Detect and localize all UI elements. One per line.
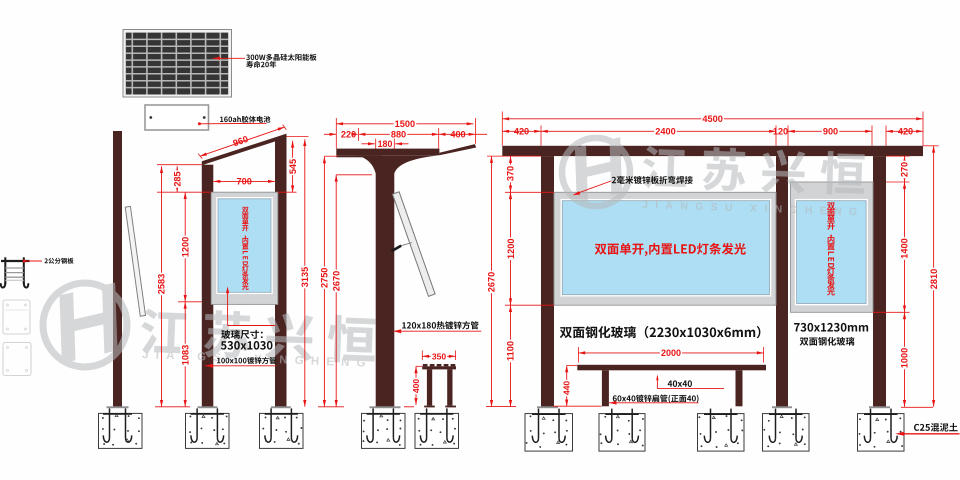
svg-text:2670: 2670: [331, 271, 341, 291]
svg-text:3135: 3135: [300, 267, 310, 287]
svg-text:1000: 1000: [900, 348, 910, 368]
svg-text:1100: 1100: [506, 341, 516, 361]
svg-text:180: 180: [378, 139, 393, 149]
svg-text:880: 880: [391, 130, 406, 140]
svg-text:420: 420: [514, 127, 529, 137]
svg-text:350: 350: [432, 351, 447, 361]
svg-text:700: 700: [237, 177, 252, 187]
svg-text:440: 440: [562, 381, 572, 396]
svg-text:2583: 2583: [157, 274, 167, 294]
svg-text:2750: 2750: [320, 268, 330, 288]
svg-text:370: 370: [506, 166, 516, 181]
svg-text:400: 400: [411, 379, 421, 394]
svg-text:120: 120: [773, 127, 788, 137]
svg-text:270: 270: [900, 162, 910, 177]
svg-text:1400: 1400: [900, 238, 910, 258]
svg-text:1200: 1200: [506, 239, 516, 259]
svg-text:420: 420: [898, 127, 913, 137]
svg-text:545: 545: [288, 159, 298, 174]
svg-text:1200: 1200: [180, 237, 190, 257]
svg-text:2000: 2000: [661, 348, 681, 358]
svg-text:900: 900: [823, 127, 838, 137]
svg-text:2670: 2670: [487, 272, 497, 292]
svg-text:285: 285: [172, 171, 182, 186]
svg-text:400: 400: [450, 130, 465, 140]
svg-text:2400: 2400: [655, 127, 675, 137]
svg-text:4500: 4500: [702, 114, 722, 124]
svg-text:2810: 2810: [929, 269, 939, 289]
svg-text:1500: 1500: [395, 119, 415, 129]
svg-text:1083: 1083: [180, 345, 190, 365]
